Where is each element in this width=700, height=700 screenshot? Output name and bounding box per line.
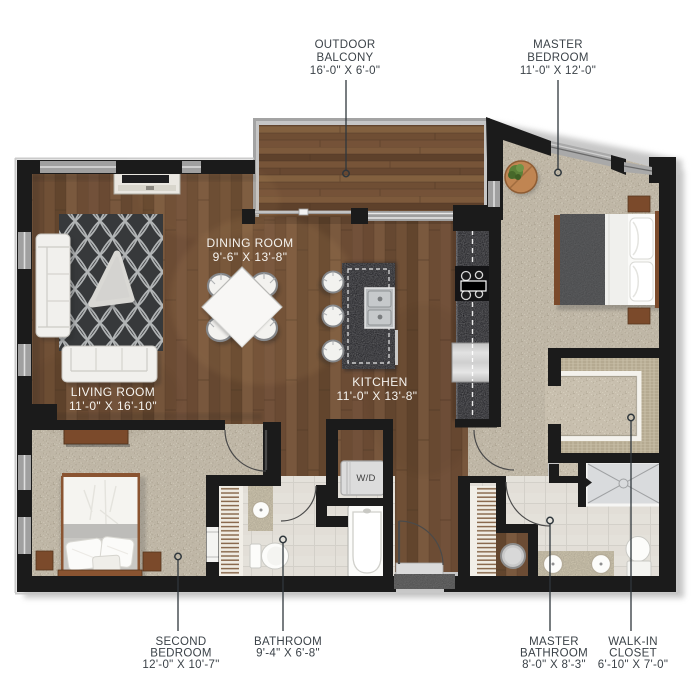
svg-text:WALK-IN: WALK-IN xyxy=(608,636,658,648)
svg-text:MASTER: MASTER xyxy=(533,39,583,51)
svg-text:MASTER: MASTER xyxy=(529,636,579,648)
svg-text:W/D: W/D xyxy=(356,473,375,484)
svg-text:CLOSET: CLOSET xyxy=(609,648,657,660)
svg-text:6'-10" X 7'-0": 6'-10" X 7'-0" xyxy=(598,659,668,671)
svg-text:11'-0" X 12'-0": 11'-0" X 12'-0" xyxy=(520,65,596,77)
svg-text:BEDROOM: BEDROOM xyxy=(527,52,589,64)
svg-text:16'-0" X 6'-0": 16'-0" X 6'-0" xyxy=(310,65,380,77)
svg-text:11'-0" X 13'-8": 11'-0" X 13'-8" xyxy=(337,389,418,403)
svg-text:BALCONY: BALCONY xyxy=(316,52,373,64)
svg-text:OUTDOOR: OUTDOOR xyxy=(315,39,376,51)
svg-text:LIVING ROOM: LIVING ROOM xyxy=(71,385,155,399)
svg-text:BATHROOM: BATHROOM xyxy=(254,636,322,648)
svg-text:9'-6" X 13'-8": 9'-6" X 13'-8" xyxy=(213,250,288,264)
svg-text:DINING ROOM: DINING ROOM xyxy=(206,236,293,250)
svg-text:BATHROOM: BATHROOM xyxy=(520,648,588,660)
svg-text:12'-0" X 10'-7": 12'-0" X 10'-7" xyxy=(142,659,219,671)
svg-text:BEDROOM: BEDROOM xyxy=(150,648,212,660)
svg-text:KITCHEN: KITCHEN xyxy=(352,375,407,389)
svg-text:SECOND: SECOND xyxy=(155,636,206,648)
svg-text:11'-0" X 16'-10": 11'-0" X 16'-10" xyxy=(69,399,157,413)
svg-text:9'-4" X 6'-8": 9'-4" X 6'-8" xyxy=(256,648,320,660)
svg-text:8'-0" X 8'-3": 8'-0" X 8'-3" xyxy=(522,659,586,671)
